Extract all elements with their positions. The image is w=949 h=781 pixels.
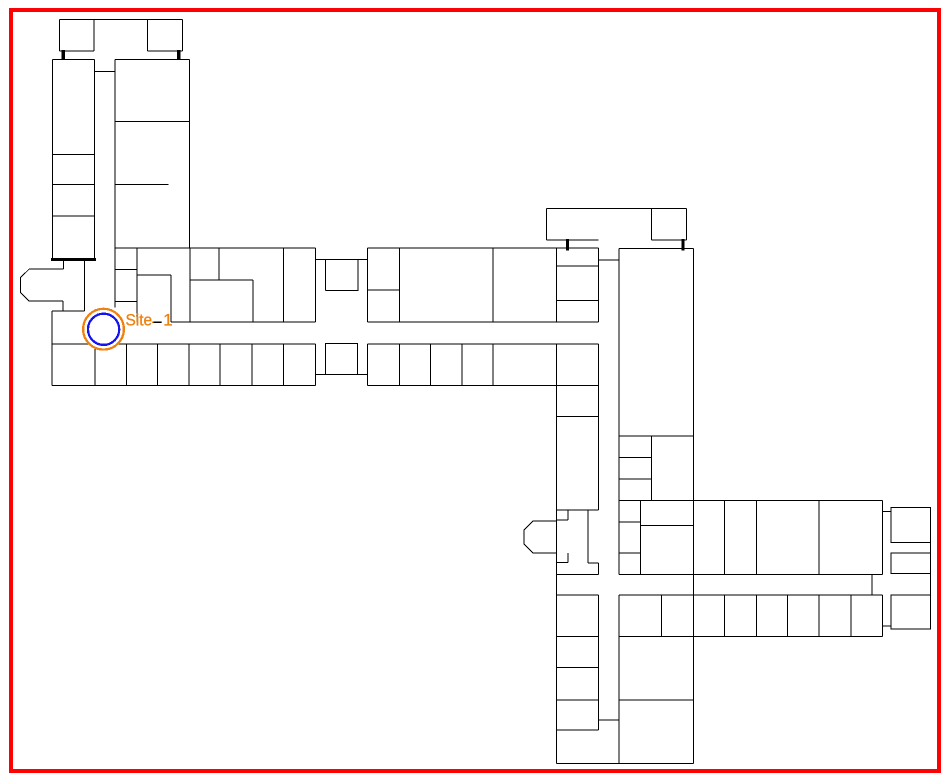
svg-text:1: 1 (163, 310, 172, 329)
svg-text:Site: Site (126, 310, 153, 329)
